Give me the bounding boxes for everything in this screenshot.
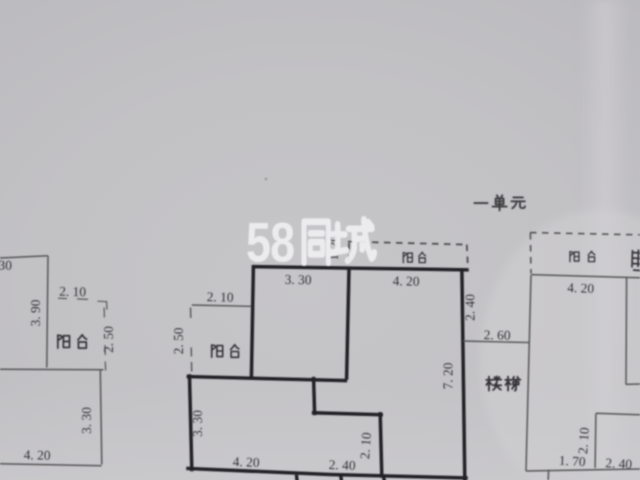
svg-text:2. 40: 2. 40: [329, 457, 357, 473]
svg-text:2. 40: 2. 40: [605, 455, 633, 471]
svg-text:4. 20: 4. 20: [567, 280, 595, 296]
svg-text:3. 30: 3. 30: [0, 257, 12, 273]
svg-text:1. 70: 1. 70: [558, 453, 586, 469]
svg-text:3. 90: 3. 90: [28, 299, 43, 326]
svg-text:2. 40: 2. 40: [463, 294, 478, 321]
svg-text:2. 10: 2. 10: [207, 289, 234, 305]
svg-text:4. 20: 4. 20: [393, 273, 420, 289]
svg-text:2. 10: 2. 10: [357, 432, 374, 460]
svg-text:2. 50: 2. 50: [171, 327, 186, 354]
svg-text:2. 10: 2. 10: [59, 284, 86, 300]
svg-text:2. 10: 2. 10: [575, 427, 592, 455]
svg-text:4. 20: 4. 20: [24, 447, 51, 463]
svg-text:2. 50: 2. 50: [101, 326, 116, 353]
svg-text:7. 20: 7. 20: [441, 362, 456, 389]
svg-text:2. 60: 2. 60: [484, 327, 511, 343]
svg-text:3. 30: 3. 30: [190, 410, 205, 437]
svg-text:4. 20: 4. 20: [233, 454, 261, 470]
svg-text:3. 30: 3. 30: [79, 407, 94, 434]
svg-text:3. 30: 3. 30: [285, 272, 312, 288]
svg-text:58: 58: [246, 211, 294, 274]
